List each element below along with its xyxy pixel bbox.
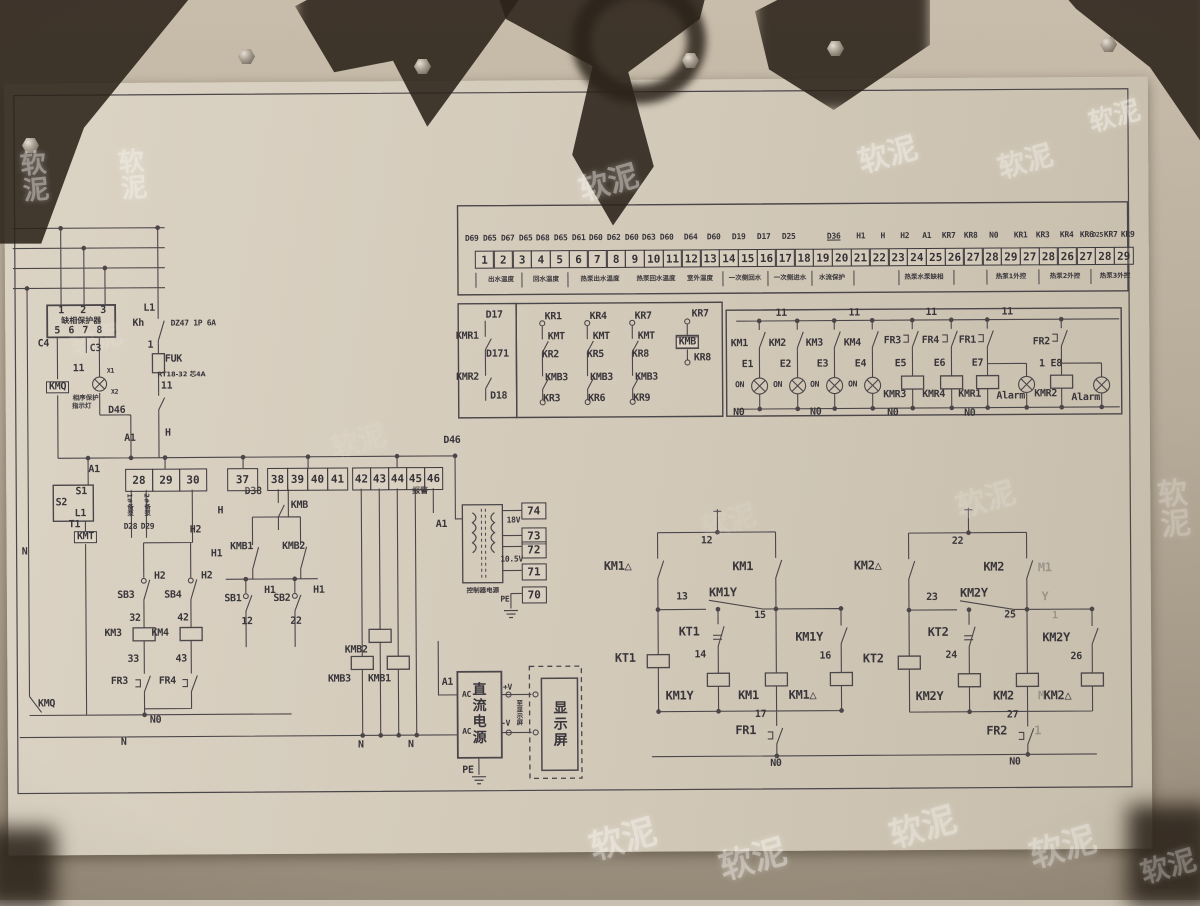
device-label: KR6 (588, 394, 605, 404)
device-label: KMB3 (635, 373, 658, 383)
terminal-number: 13 (676, 592, 688, 602)
wire-label: H2 (154, 572, 166, 582)
function-label: 相序保护 (73, 395, 99, 402)
terminal-strip-cell: 14 (719, 249, 739, 267)
terminal-box-cell: 37 (227, 468, 258, 491)
device-label: KMB (676, 336, 699, 348)
device-label: KR7 (635, 312, 652, 322)
device-label: PE (500, 596, 509, 604)
terminal-number: 22 (952, 537, 964, 547)
wire-label: D171 (486, 350, 509, 360)
terminal-number: 26 (1071, 652, 1083, 662)
terminal-number: 5 (54, 326, 60, 336)
device-label: KMT (638, 332, 655, 342)
device-label: FR2 (1033, 337, 1050, 347)
function-label: 控制器电源 (467, 587, 500, 594)
device-label: FR1 (959, 336, 976, 346)
device-label: KM1Y (666, 689, 694, 701)
terminal-number: 11 (1001, 307, 1013, 317)
device-label: KM2 (983, 561, 1004, 573)
wire-label: N0 (810, 408, 822, 418)
terminal-strip-cell: 28 (1039, 247, 1059, 265)
terminal-strip-cell: 11 (663, 249, 683, 267)
wire-label: D60 (660, 234, 674, 242)
device-label: +V (503, 684, 512, 692)
wire-label: E2 (780, 360, 792, 370)
device-label: KM3 (806, 339, 823, 349)
wire-label: N (358, 740, 364, 750)
terminal-box-cell: 38 (267, 468, 288, 491)
function-label: 热泵水泵缺相 (904, 274, 943, 281)
terminal-number: 1 (147, 341, 153, 351)
device-label: ON (810, 381, 819, 389)
function-label: 热泵1外控 (996, 273, 1027, 280)
wire-label: A1 (922, 232, 931, 240)
device-label: KT1 (679, 625, 700, 637)
device-label: KMR1 (958, 390, 981, 400)
terminal-box-cell: 44 (388, 467, 407, 490)
terminal-strip-cell: 3 (512, 250, 532, 268)
terminal-strip-cell: 28 (982, 248, 1002, 266)
device-label: KT2 (928, 626, 949, 638)
device-label: KM1Y (709, 586, 737, 598)
device-label: KR8 (632, 350, 649, 360)
terminal-strip-cell: 22 (870, 248, 890, 266)
terminal-strip-cell: 27 (964, 248, 984, 266)
terminal-strip-cell: 5 (550, 250, 570, 268)
wire-label: A1 (436, 520, 448, 530)
photo-of-schematic: 缺相保护器1235678C4C3KMQ11X1X2相序保护指示灯D46L1KhD… (0, 0, 1200, 900)
terminal-box-cell: 45 (406, 467, 425, 490)
wire-label: D64 (684, 233, 698, 241)
paper-sheet: 缺相保护器1235678C4C3KMQ11X1X2相序保护指示灯D46L1KhD… (0, 0, 1200, 904)
terminal-number: 8 (96, 326, 102, 336)
terminal-strip-cell: 21 (851, 248, 871, 266)
wire-label: A1 (442, 678, 454, 688)
wire-label: E3 (817, 360, 829, 370)
wire-label: D17 (486, 311, 503, 321)
terminal-strip-cell: 29 (1114, 247, 1134, 265)
wire-label: H2 (900, 232, 909, 240)
device-label: Alarm (1071, 393, 1100, 403)
terminal-strip-cell: 20 (832, 248, 852, 266)
box-title: 直流电源 (471, 682, 485, 746)
box-title: 显示屏 (553, 700, 567, 748)
terminal-number: 2 (80, 306, 86, 316)
device-label: S1 (75, 487, 87, 497)
wire-label: D25 (1092, 232, 1103, 239)
device-label: 10.5V (500, 555, 523, 563)
terminal-strip-cell: 27 (1076, 247, 1096, 265)
terminal-strip-cell: 2 (494, 251, 514, 269)
device-label: KM4 (844, 338, 861, 348)
terminal-number: 7 (82, 326, 88, 336)
device-label: SB1 (224, 594, 241, 604)
device-label: FUK (165, 355, 182, 365)
function-label: 出水温度 (488, 276, 514, 283)
wire-label: A1 (124, 434, 136, 444)
device-label: ON (735, 381, 744, 389)
device-label: KMR1 (456, 332, 479, 342)
wire-label: N0 (733, 408, 745, 418)
wire-label: L1 (143, 304, 155, 314)
wire-label: D36 (827, 233, 841, 241)
device-label: KT2 (863, 652, 884, 664)
device-label: KMB3 (590, 373, 613, 383)
wire-label: D60 (589, 234, 603, 242)
device-label: KMT (548, 332, 565, 342)
wire-label: N0 (150, 716, 162, 726)
device-label: C4 (38, 339, 50, 349)
wire-label: D69 (465, 235, 479, 243)
device-label: SB4 (164, 591, 181, 601)
device-label: KMQ (46, 381, 69, 393)
terminal-number: 22 (290, 617, 302, 627)
function-label: 一次侧回水 (729, 275, 762, 282)
terminal-number: 27 (1007, 710, 1019, 720)
ghost-label: 1 (1052, 611, 1058, 621)
terminal-number: 25 (1004, 610, 1016, 620)
wire-label: D63 (642, 234, 656, 242)
function-label: 一次侧进水 (774, 274, 807, 281)
wire-label: D29 (141, 523, 155, 531)
device-label: Kh (132, 319, 144, 329)
terminal-box-cell: 70 (522, 586, 547, 603)
device-label: KMR2 (456, 373, 479, 383)
device-label: KM1Y (795, 631, 823, 643)
device-label: AC (462, 728, 471, 736)
device-label: KR4 (590, 312, 607, 322)
device-label: S2 (56, 498, 68, 508)
device-label: AC (462, 691, 471, 699)
device-label: KM2Y (960, 587, 988, 599)
terminal-number: 11 (925, 308, 937, 318)
wire-label: D25 (782, 233, 796, 241)
device-label: KMR4 (922, 390, 945, 400)
terminal-number: 3 (100, 306, 106, 316)
terminal-strip-cell: 10 (644, 250, 664, 268)
device-label: DZ47 1P 6A (171, 319, 216, 327)
ghost-label: Y (1041, 590, 1048, 602)
terminal-strip-cell: 28 (1095, 247, 1115, 265)
wire-label: KR7 (942, 232, 956, 240)
wiring-diagram-svg (0, 0, 1200, 904)
wire-label: H2 (190, 525, 202, 535)
terminal-strip-cell: 27 (1020, 247, 1040, 265)
device-label: KR5 (587, 350, 604, 360)
terminal-strip-cell: 8 (606, 250, 626, 268)
device-label: KM2 (993, 689, 1014, 701)
terminal-strip-cell: 26 (1058, 247, 1078, 265)
wire-label: KR8 (964, 232, 978, 240)
device-label: T1 (69, 520, 81, 530)
device-label: KM3 (104, 629, 121, 639)
terminal-strip-cell: 24 (907, 248, 927, 266)
terminal-box-cell: 46 (424, 467, 443, 490)
function-label: 水流保护 (819, 274, 845, 281)
device-label: ON (848, 380, 857, 388)
device-label: KM4 (151, 629, 168, 639)
schematic-layer: 缺相保护器1235678C4C3KMQ11X1X2相序保护指示灯D46L1KhD… (0, 0, 1200, 904)
device-label: KR2 (542, 350, 559, 360)
terminal-number: 33 (128, 655, 140, 665)
terminal-number: 17 (755, 710, 767, 720)
wire-label: N0 (1009, 757, 1021, 767)
terminal-number: 24 (946, 651, 958, 661)
wire-label: A1 (88, 465, 100, 475)
device-label: KR9 (633, 394, 650, 404)
wire-label: D62 (607, 234, 621, 242)
terminal-number: 14 (694, 650, 706, 660)
function-label: 2#备泵 (143, 493, 150, 516)
wire-label: H (880, 232, 885, 240)
wire-label: E7 (972, 359, 984, 369)
terminal-number: 11 (73, 364, 85, 374)
wire-label: D65 (519, 234, 533, 242)
device-label: KM1△ (604, 560, 632, 572)
terminal-number: 11 (161, 382, 173, 392)
terminal-number: 43 (176, 655, 188, 665)
wire-label: 1 E8 (1039, 359, 1062, 369)
box-title: 缺相保护器 (61, 317, 101, 325)
wire-label: H (217, 506, 223, 516)
wire-label: E6 (934, 359, 946, 369)
device-label: X2 (111, 389, 118, 396)
device-label: FR3 (111, 677, 128, 687)
terminal-strip-cell: 1 (475, 251, 495, 269)
terminal-box-cell: 42 (352, 467, 371, 490)
wire-label: D18 (490, 392, 507, 402)
device-label: KM2△ (854, 559, 882, 571)
terminal-strip-cell: 18 (794, 249, 814, 267)
terminal-box-cell: 40 (307, 468, 328, 491)
wire-label: N0 (989, 232, 998, 240)
terminal-strip-cell: 16 (757, 249, 777, 267)
wire-label: N (121, 738, 127, 748)
device-label: KR7 (692, 309, 709, 319)
terminal-strip-cell: 23 (888, 248, 908, 266)
terminal-strip-cell: 7 (588, 250, 608, 268)
ghost-label: 1 (1034, 724, 1041, 736)
device-label: FR2 (986, 725, 1007, 737)
wire-label: N0 (770, 759, 782, 769)
wire-label: D60 (707, 233, 721, 241)
terminal-box-cell: 43 (370, 467, 389, 490)
device-label: ON (773, 381, 782, 389)
device-label: SB2 (273, 594, 290, 604)
terminal-strip-cell: 26 (945, 248, 965, 266)
function-label: 1#备泵 (126, 493, 133, 516)
wire-label: KR3 (1036, 231, 1050, 239)
wire-label: D67 (501, 235, 515, 243)
device-label: FR1 (735, 724, 756, 736)
device-label: KMT (593, 332, 610, 342)
device-label: KM2△ (1044, 689, 1072, 701)
terminal-number: 16 (820, 652, 832, 662)
device-label: KM1 (731, 339, 748, 349)
function-label: 热泵出水温度 (580, 276, 619, 283)
device-label: KT1 (615, 652, 636, 664)
terminal-strip-cell: 29 (1001, 247, 1021, 265)
function-label: 指示灯 (72, 403, 92, 410)
wire-label: KR9 (1121, 231, 1135, 239)
device-label: KMB (291, 501, 308, 511)
device-label: KMT (74, 531, 97, 543)
function-label: 至显示屏 (515, 699, 522, 725)
wire-label: D46 (108, 406, 125, 416)
terminal-strip-cell: 12 (682, 249, 702, 267)
wire-label: H (165, 429, 171, 439)
device-label: KMB1 (230, 542, 253, 552)
wire-label: D19 (732, 233, 746, 241)
wire-label: H1 (211, 549, 223, 559)
device-label: KM1 (732, 560, 753, 572)
terminal-number: 6 (68, 326, 74, 336)
device-label: FR4 (922, 336, 939, 346)
device-label: KMB2 (345, 645, 368, 655)
wire-label: H1 (856, 232, 865, 240)
wire-label: KR1 (1014, 231, 1028, 239)
wire-label: N0 (887, 408, 899, 418)
terminal-box-cell: 39 (287, 468, 308, 491)
terminal-box-cell: 72 (522, 541, 547, 558)
wire-label: N0 (964, 409, 976, 419)
function-label: 热泵回水温度 (636, 275, 675, 282)
device-label: KR8 (694, 353, 711, 363)
terminal-number: 15 (754, 611, 766, 621)
wire-label: E1 (742, 360, 754, 370)
device-label: L1 (75, 509, 87, 519)
terminal-strip-cell: 13 (700, 249, 720, 267)
terminal-box-cell: 28 (125, 469, 153, 492)
wire-label: H1 (313, 586, 325, 596)
terminal-box-cell: 29 (152, 469, 180, 492)
function-label: 热泵2外控 (1050, 273, 1081, 280)
terminal-number: 1 (58, 306, 64, 316)
device-label: RT18-32 芯4A (157, 371, 205, 378)
wire-label: E4 (855, 359, 867, 369)
wire-label: D60 (625, 234, 639, 242)
terminal-strip-cell: 17 (776, 249, 796, 267)
terminal-strip-cell: 6 (569, 250, 589, 268)
terminal-number: 12 (241, 617, 253, 627)
device-label: KMR2 (1034, 389, 1057, 399)
device-label: KMR3 (883, 390, 906, 400)
wire-label: E5 (895, 359, 907, 369)
device-label: KM1△ (789, 689, 817, 701)
function-label: 室外温度 (687, 275, 713, 282)
device-label: FR4 (159, 677, 176, 687)
device-label: KM2Y (1042, 631, 1070, 643)
wire-label: D65 (483, 235, 497, 243)
terminal-number: 12 (701, 536, 713, 546)
terminal-number: 23 (926, 593, 938, 603)
device-label: 18V (507, 516, 521, 524)
terminal-box-cell: 41 (327, 468, 348, 491)
device-label: KMQ (38, 699, 55, 709)
wire-label: D65 (554, 234, 568, 242)
device-label: PE (462, 766, 474, 776)
function-label: 热泵3外控 (1100, 273, 1131, 280)
device-label: -V (501, 720, 510, 728)
device-label: X1 (107, 368, 114, 375)
terminal-number: 11 (775, 309, 787, 319)
device-label: KMB3 (545, 373, 568, 383)
terminal-number: 42 (177, 614, 189, 624)
function-label: 回水温度 (533, 276, 559, 283)
terminal-strip-cell: 25 (926, 248, 946, 266)
wire-label: N (408, 740, 414, 750)
device-label: KMB3 (328, 675, 351, 685)
wire-label: H2 (201, 571, 213, 581)
terminal-strip-cell: 9 (625, 250, 645, 268)
wire-label: N (22, 547, 28, 557)
device-label: KMB1 (368, 674, 391, 684)
device-label: KM2Y (916, 690, 944, 702)
device-label: KR1 (545, 312, 562, 322)
device-label: FR3 (884, 336, 901, 346)
terminal-strip-cell: 19 (813, 249, 833, 267)
device-label: C3 (90, 344, 102, 354)
wire-label: D68 (536, 234, 550, 242)
terminal-strip-cell: 4 (531, 250, 551, 268)
wire-label: D28 (124, 523, 138, 531)
wire-label: KR4 (1060, 231, 1074, 239)
device-label: Alarm (996, 391, 1025, 401)
terminal-box-cell: 71 (522, 563, 547, 580)
device-label: KM1 (738, 689, 759, 701)
wire-label: D17 (757, 233, 771, 241)
terminal-strip-cell: 15 (738, 249, 758, 267)
wire-label: D46 (443, 436, 460, 446)
wire-label: D61 (572, 234, 586, 242)
ghost-label: M1 (1038, 561, 1052, 573)
terminal-number: 11 (848, 308, 860, 318)
wire-label: KR7 (1104, 231, 1118, 239)
terminal-box-cell: 74 (521, 502, 546, 519)
device-label: KMB2 (282, 542, 305, 552)
device-label: KM2 (769, 339, 786, 349)
device-label: KR3 (543, 394, 560, 404)
terminal-number: 32 (129, 614, 141, 624)
terminal-box-cell: 30 (179, 468, 207, 491)
device-label: SB3 (117, 591, 134, 601)
